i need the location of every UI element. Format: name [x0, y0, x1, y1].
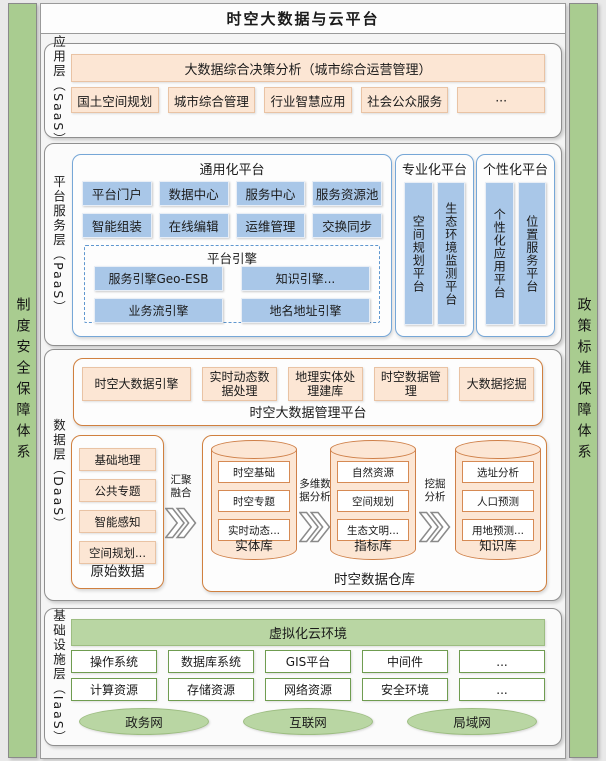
page-title: 时空大数据与云平台 [41, 4, 565, 34]
indicator-db-name: 指标库 [331, 535, 415, 554]
platform-engine-grid: 服务引擎Geo-ESB 知识引擎... 业务流引擎 地名地址引擎 [94, 266, 370, 323]
engine-cell: 地名地址引擎 [241, 298, 370, 323]
iaas-software-box: 操作系统 [71, 650, 157, 673]
platform-engine-box: 平台引擎 服务引擎Geo-ESB 知识引擎... 业务流引擎 地名地址引擎 [84, 245, 380, 323]
general-cell: 智能组装 [82, 213, 152, 238]
knowledge-db-item: 选址分析 [462, 461, 534, 483]
platform-frame: 时空大数据与云平台 应用层（SaaS） 大数据综合决策分析（城市综合运营管理） … [40, 3, 566, 759]
general-platform-title: 通用化平台 [73, 159, 391, 178]
professional-column: 空间规划平台 [404, 182, 433, 325]
general-cell: 平台门户 [82, 181, 152, 206]
indicator-db-items: 自然资源 空间规划 生态文明... [337, 461, 409, 541]
bigdata-mgmt-platform-title: 时空大数据管理平台 [74, 402, 542, 421]
network-row: 政务网 互联网 局域网 [71, 708, 545, 733]
left-guarantee-bar: 制度安全保障体系 [8, 3, 37, 758]
indicator-db-item: 自然资源 [337, 461, 409, 483]
general-cell: 服务中心 [236, 181, 306, 206]
engine-cell: 业务流引擎 [94, 298, 223, 323]
entity-db-cylinder: 时空基础 时空专题 实时动态... 实体库 [211, 449, 297, 560]
mgmt-cell: 时空数据管理 [374, 367, 449, 401]
layer-daas-label: 数据层（DaaS） [50, 418, 67, 531]
personalized-column-label: 个性化应用平台 [492, 208, 506, 299]
personalized-platform-box: 个性化平台 个性化应用平台 位置服务平台 [476, 154, 555, 337]
raw-data-item: 基础地理 [79, 448, 156, 471]
flow-mining-analysis: 挖掘分析 [413, 478, 457, 546]
entity-db-item: 时空基础 [218, 461, 290, 483]
double-chevron-icon [299, 508, 331, 546]
entity-db-item: 时空专题 [218, 490, 290, 512]
layer-saas-label: 应用层（SaaS） [50, 35, 67, 147]
general-cell: 数据中心 [159, 181, 229, 206]
mgmt-cell: 地理实体处理建库 [288, 367, 363, 401]
iaas-resource-box: 网络资源 [265, 678, 351, 701]
iaas-software-box: 中间件 [362, 650, 448, 673]
right-guarantee-bar: 政策标准保障体系 [569, 3, 598, 758]
raw-data-title: 原始数据 [72, 560, 163, 580]
professional-columns: 空间规划平台 生态环境监测平台 [404, 182, 465, 325]
personalized-platform-title: 个性化平台 [477, 159, 554, 178]
layer-saas: 应用层（SaaS） 大数据综合决策分析（城市综合运营管理） 国土空间规划 城市综… [44, 43, 562, 138]
raw-data-items: 基础地理 公共专题 智能感知 空间规划... [79, 448, 156, 564]
raw-data-box: 基础地理 公共专题 智能感知 空间规划... 原始数据 [71, 435, 164, 589]
personalized-columns: 个性化应用平台 位置服务平台 [485, 182, 546, 325]
saas-app-box: 国土空间规划 [71, 87, 159, 113]
general-platform-grid: 平台门户 数据中心 服务中心 服务资源池 智能组装 在线编辑 运维管理 交换同步 [82, 181, 382, 238]
iaas-software-row: 操作系统 数据库系统 GIS平台 中间件 ... [71, 650, 545, 673]
network-ellipse: 互联网 [243, 708, 373, 735]
layer-paas-label: 平台服务层（PaaS） [50, 175, 67, 315]
iaas-resource-box: 安全环境 [362, 678, 448, 701]
iaas-software-more-box: ... [459, 650, 545, 673]
raw-data-item: 公共专题 [79, 479, 156, 502]
network-ellipse: 局域网 [407, 708, 537, 735]
professional-column-label: 空间规划平台 [411, 215, 425, 293]
entity-db-items: 时空基础 时空专题 实时动态... [218, 461, 290, 541]
professional-platform-title: 专业化平台 [396, 159, 473, 178]
flow-aggregate-label: 汇聚融合 [168, 474, 194, 500]
mgmt-cell: 时空大数据引擎 [82, 367, 191, 401]
flow-multidim-analysis-label: 多维数据分析 [295, 478, 335, 504]
professional-column: 生态环境监测平台 [437, 182, 466, 325]
knowledge-db-cylinder: 选址分析 人口预测 用地预测... 知识库 [455, 449, 541, 560]
iaas-software-box: GIS平台 [265, 650, 351, 673]
professional-platform-box: 专业化平台 空间规划平台 生态环境监测平台 [395, 154, 474, 337]
indicator-db-cylinder: 自然资源 空间规划 生态文明... 指标库 [330, 449, 416, 560]
bigdata-mgmt-platform-box: 时空大数据引擎 实时动态数据处理 地理实体处理建库 时空数据管理 大数据挖掘 时… [73, 358, 543, 426]
saas-app-box: 行业智慧应用 [264, 87, 352, 113]
general-cell: 运维管理 [236, 213, 306, 238]
virtual-cloud-bar: 虚拟化云环境 [71, 619, 545, 646]
right-guarantee-label: 政策标准保障体系 [574, 297, 594, 465]
engine-cell: 知识引擎... [241, 266, 370, 291]
platform-engine-title: 平台引擎 [85, 248, 379, 267]
iaas-resource-row: 计算资源 存储资源 网络资源 安全环境 ... [71, 678, 545, 701]
iaas-resource-box: 计算资源 [71, 678, 157, 701]
mgmt-cell: 大数据挖掘 [459, 367, 534, 401]
indicator-db-item: 空间规划 [337, 490, 409, 512]
engine-cell: 服务引擎Geo-ESB [94, 266, 223, 291]
double-chevron-icon [419, 508, 451, 546]
general-platform-box: 通用化平台 平台门户 数据中心 服务中心 服务资源池 智能组装 在线编辑 运维管… [72, 154, 392, 337]
layer-paas: 平台服务层（PaaS） 通用化平台 平台门户 数据中心 服务中心 服务资源池 智… [44, 143, 562, 346]
knowledge-db-item: 人口预测 [462, 490, 534, 512]
professional-column-label: 生态环境监测平台 [444, 202, 458, 306]
personalized-column-label: 位置服务平台 [525, 215, 539, 293]
raw-data-item: 智能感知 [79, 510, 156, 533]
iaas-resource-more-box: ... [459, 678, 545, 701]
saas-app-row: 国土空间规划 城市综合管理 行业智慧应用 社会公众服务 ··· [71, 87, 545, 113]
saas-banner-box: 大数据综合决策分析（城市综合运营管理） [71, 54, 545, 82]
personalized-column: 个性化应用平台 [485, 182, 514, 325]
saas-app-more-box: ··· [457, 87, 545, 113]
general-cell: 服务资源池 [312, 181, 382, 206]
network-ellipse: 政务网 [79, 708, 209, 735]
spatiotemporal-warehouse-box: 时空基础 时空专题 实时动态... 实体库 多维数据分析 [202, 435, 547, 592]
flow-mining-analysis-label: 挖掘分析 [422, 478, 448, 504]
layer-iaas-label: 基础设施层（IaaS） [50, 609, 67, 745]
personalized-column: 位置服务平台 [518, 182, 547, 325]
architecture-diagram: 制度安全保障体系 政策标准保障体系 时空大数据与云平台 应用层（SaaS） 大数… [0, 0, 606, 761]
mgmt-cell: 实时动态数据处理 [202, 367, 277, 401]
iaas-software-box: 数据库系统 [168, 650, 254, 673]
spatiotemporal-warehouse-title: 时空数据仓库 [203, 568, 546, 588]
flow-aggregate: 汇聚融合 [159, 474, 203, 542]
iaas-resource-box: 存储资源 [168, 678, 254, 701]
double-chevron-icon [165, 504, 197, 542]
knowledge-db-items: 选址分析 人口预测 用地预测... [462, 461, 534, 541]
left-guarantee-label: 制度安全保障体系 [13, 297, 33, 465]
layer-iaas: 基础设施层（IaaS） 虚拟化云环境 操作系统 数据库系统 GIS平台 中间件 … [44, 608, 562, 746]
entity-db-name: 实体库 [212, 535, 296, 554]
knowledge-db-name: 知识库 [456, 535, 540, 554]
saas-app-box: 社会公众服务 [361, 87, 449, 113]
saas-app-box: 城市综合管理 [168, 87, 256, 113]
general-cell: 交换同步 [312, 213, 382, 238]
bigdata-mgmt-row: 时空大数据引擎 实时动态数据处理 地理实体处理建库 时空数据管理 大数据挖掘 [82, 367, 534, 401]
general-cell: 在线编辑 [159, 213, 229, 238]
layer-daas: 数据层（DaaS） 时空大数据引擎 实时动态数据处理 地理实体处理建库 时空数据… [44, 349, 562, 601]
